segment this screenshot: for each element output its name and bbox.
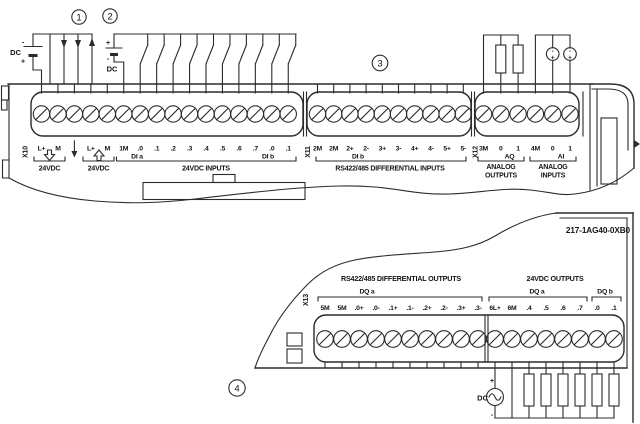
terminal-label: .2- xyxy=(440,305,447,312)
screw-slot xyxy=(387,333,398,344)
x13-label-area: X13 RS422/485 DIFFERENTIAL OUTPUTS 24VDC… xyxy=(303,274,621,306)
terminal-label: .7 xyxy=(577,305,583,312)
dc-label-left: DC xyxy=(10,48,21,57)
terminal-label: 1 xyxy=(568,146,572,153)
din-clip xyxy=(287,333,302,346)
bottom-connector xyxy=(143,183,305,200)
screw-slot xyxy=(283,108,294,119)
load-resistor-icon xyxy=(575,374,585,406)
screw-slot xyxy=(52,108,63,119)
terminal-label: L+ xyxy=(87,146,95,153)
plus-sign: + xyxy=(21,59,25,66)
screw-slot xyxy=(353,333,364,344)
screw-slot xyxy=(135,108,146,119)
terminal-label: 3M xyxy=(479,146,489,153)
screw-slot xyxy=(455,333,466,344)
screw-slot xyxy=(489,333,500,344)
screw-slot xyxy=(438,333,449,344)
part-number: 217-1AG40-0XB0 xyxy=(566,226,631,235)
analog-outputs-caption-2: OUTPUTS xyxy=(485,173,518,180)
callout-1: 1 xyxy=(72,10,86,24)
screw-slot xyxy=(217,108,228,119)
sensor-supply-circuit: DC - + xyxy=(10,34,95,84)
terminal-label: .4 xyxy=(526,305,532,312)
input-switches xyxy=(140,34,296,84)
screw-slot xyxy=(574,333,585,344)
analog-outputs-caption-1: ANALOG xyxy=(486,164,516,171)
screw-slot xyxy=(233,108,244,119)
callout-3: 3 xyxy=(372,55,388,71)
screw-slot xyxy=(409,108,420,119)
analog-inputs-caption-1: ANALOG xyxy=(538,164,568,171)
terminal-label: 4M xyxy=(531,146,541,153)
terminal-label: 2+ xyxy=(346,146,354,153)
current-down-arrow-icon xyxy=(61,34,67,84)
terminal-label: .2 xyxy=(170,146,176,153)
upper-housing xyxy=(2,84,640,203)
wiring-diagram-page: L+ML+M1M.0.1.2.3.4.5.6.7.0.1 2M2M2+2-3+3… xyxy=(0,0,640,424)
screw-slot xyxy=(361,108,372,119)
screw-slot xyxy=(85,108,96,119)
callout-2: 2 xyxy=(103,9,117,23)
screw-slot xyxy=(266,108,277,119)
screw-slot xyxy=(608,333,619,344)
power-supply-caption: 24VDC xyxy=(88,166,110,173)
terminal-label: .0 xyxy=(269,146,275,153)
screw-slot xyxy=(530,108,541,119)
terminal-label: 3- xyxy=(396,146,402,153)
terminal-label: 4+ xyxy=(411,146,419,153)
terminal-label: 2- xyxy=(363,146,369,153)
switch-blade-icon xyxy=(157,45,165,64)
dq-b-label: DQ b xyxy=(597,289,612,296)
current-down-arrow-icon xyxy=(75,34,81,84)
callout-4: 4 xyxy=(229,380,245,396)
aq-label: AQ xyxy=(505,154,515,161)
load-resistor-icon xyxy=(592,374,602,406)
terminal-label: .5 xyxy=(220,146,226,153)
screw-slot xyxy=(564,108,575,119)
minus-sign: - xyxy=(107,56,110,63)
terminal-label: 5M xyxy=(337,305,347,312)
terminal-label: 5+ xyxy=(443,146,451,153)
terminal-label: .1 xyxy=(286,146,292,153)
din-clip xyxy=(287,349,302,363)
terminal-label: .1 xyxy=(611,305,617,312)
connector-label-x10: X10 xyxy=(23,146,30,158)
sensor-supply-caption: 24VDC xyxy=(39,166,61,173)
terminal-label: 5- xyxy=(460,146,466,153)
callout-number: 3 xyxy=(377,58,382,69)
terminal-label: L+ xyxy=(38,146,46,153)
load-resistor-icon xyxy=(558,374,568,406)
callout-number: 4 xyxy=(234,383,239,394)
terminal-label: 1 xyxy=(516,146,520,153)
terminal-label: .1 xyxy=(154,146,160,153)
power-in-arrow-icon xyxy=(94,150,104,161)
screw-slot xyxy=(200,108,211,119)
terminal-label: .4 xyxy=(203,146,209,153)
dc-supply-icon xyxy=(487,368,504,418)
input-supply-circuit: + - DC xyxy=(106,34,296,84)
terminal-strip-x10: L+ML+M1M.0.1.2.3.4.5.6.7.0.1 xyxy=(31,84,303,153)
switch-blade-icon xyxy=(272,45,280,64)
dc-inputs-caption: 24VDC INPUTS xyxy=(182,166,230,173)
terminal-label: .0 xyxy=(138,146,144,153)
rs422-outputs-header: RS422/485 DIFFERENTIAL OUTPUTS xyxy=(341,274,461,283)
analog-input-sources: - + - + xyxy=(535,35,576,84)
output-load-circuit: DC + - xyxy=(477,368,619,419)
terminal-label: 5M xyxy=(320,305,330,312)
voltage-source-icon: - + xyxy=(564,35,577,84)
screw-slot xyxy=(69,108,80,119)
terminal-strip-x11: 2M2M2+2-3+3-4+4-5+5- xyxy=(307,84,471,153)
screw-slot xyxy=(312,108,323,119)
terminal-label: .0 xyxy=(594,305,600,312)
earth-arrow-icon xyxy=(71,141,77,158)
terminal-label: 6L+ xyxy=(489,305,501,312)
load-resistor-icon xyxy=(513,45,523,73)
terminal-label: 0 xyxy=(499,146,503,153)
connector-tab xyxy=(213,175,235,183)
switch-blade-icon xyxy=(288,45,296,64)
screw-slot xyxy=(393,108,404,119)
switch-blade-icon xyxy=(222,45,230,64)
terminal-label: .1- xyxy=(406,305,413,312)
terminal-label: .3- xyxy=(474,305,481,312)
terminal-label: .0- xyxy=(372,305,379,312)
screw-slot xyxy=(513,108,524,119)
terminal-label: .1+ xyxy=(388,305,397,312)
load-resistor-icon xyxy=(541,374,551,406)
switch-blade-icon xyxy=(140,45,148,64)
current-up-arrow-icon xyxy=(89,34,95,84)
screw-slot xyxy=(540,333,551,344)
terminal-label: 3+ xyxy=(379,146,387,153)
minus-sign: - xyxy=(569,49,571,55)
analog-inputs-caption-2: INPUTS xyxy=(541,173,566,180)
load-resistor-icon xyxy=(524,374,534,406)
output-loads xyxy=(524,368,619,418)
screw-slot xyxy=(118,108,129,119)
power-out-arrow-icon xyxy=(45,150,55,161)
screw-slot xyxy=(523,333,534,344)
load-resistor-icon xyxy=(496,45,506,73)
screw-slot xyxy=(328,108,339,119)
terminal-strip-x12: 3M014M01 xyxy=(475,84,579,153)
switch-blade-icon xyxy=(206,45,214,64)
voltage-source-icon: - + xyxy=(546,35,559,84)
screw-slot xyxy=(557,333,568,344)
dq-a-label: DQ a xyxy=(529,289,544,296)
screw-slot xyxy=(442,108,453,119)
screw-slot xyxy=(184,108,195,119)
di-b-label: DI b xyxy=(262,154,274,161)
di-a-label: DI a xyxy=(131,154,143,161)
switch-blade-icon xyxy=(255,45,263,64)
screw-slot xyxy=(151,108,162,119)
terminal-label: .3 xyxy=(187,146,193,153)
terminal-label: .3+ xyxy=(456,305,465,312)
terminal-strip-x13: 5M5M.0+.0-.1+.1-.2+.2-.3+.3-6L+6M.4.5.6.… xyxy=(314,305,624,368)
connector-label-x12: X12 xyxy=(473,146,480,158)
plc-wiring-diagram: L+ML+M1M.0.1.2.3.4.5.6.7.0.1 2M2M2+2-3+3… xyxy=(0,0,640,424)
terminal-label: M xyxy=(55,146,61,153)
screw-slot xyxy=(458,108,469,119)
screw-slot xyxy=(425,108,436,119)
terminal-label: 2M xyxy=(313,146,323,153)
screw-slot xyxy=(168,108,179,119)
screw-slot xyxy=(404,333,415,344)
dc-label-output: DC xyxy=(477,394,488,403)
terminal-label: .6 xyxy=(560,305,566,312)
analog-output-loads xyxy=(484,35,524,84)
screw-slot xyxy=(250,108,261,119)
plus-sign: + xyxy=(490,378,494,385)
clip-pointer-icon xyxy=(634,140,640,148)
x11-di-b-label: DI b xyxy=(352,154,364,161)
terminal-label: 0 xyxy=(551,146,555,153)
dc-outputs-header: 24VDC OUTPUTS xyxy=(527,274,584,283)
dq-a-label: DQ a xyxy=(359,289,374,296)
lower-housing: 217-1AG40-0XB0 xyxy=(255,213,633,422)
dc-battery-icon xyxy=(24,34,42,84)
ai-label: AI xyxy=(558,154,565,161)
callout-number: 1 xyxy=(76,12,81,23)
terminal-label: M xyxy=(105,146,111,153)
terminal-label: 6M xyxy=(507,305,517,312)
terminal-label: 1M xyxy=(119,146,129,153)
terminal-label: .5 xyxy=(543,305,549,312)
switch-blade-icon xyxy=(239,45,247,64)
screw-slot xyxy=(495,108,506,119)
lower-torn-edge xyxy=(255,213,556,368)
minus-sign: - xyxy=(552,49,554,55)
plus-sign: + xyxy=(106,40,110,47)
rs422-inputs-caption: RS422/485 DIFFERENTIAL INPUTS xyxy=(335,166,445,173)
screw-slot xyxy=(344,108,355,119)
terminal-label: 4- xyxy=(428,146,434,153)
screw-slot xyxy=(319,333,330,344)
terminal-label: .6 xyxy=(236,146,242,153)
screw-slot xyxy=(478,108,489,119)
screw-slot xyxy=(377,108,388,119)
switch-blade-icon xyxy=(173,45,181,64)
screw-slot xyxy=(547,108,558,119)
terminal-label: .0+ xyxy=(354,305,363,312)
screw-slot xyxy=(472,333,483,344)
screw-slot xyxy=(102,108,113,119)
callout-number: 2 xyxy=(107,11,112,22)
screw-slot xyxy=(336,333,347,344)
minus-sign: - xyxy=(491,412,494,419)
terminal-label: .2+ xyxy=(422,305,431,312)
connector-label-x11: X11 xyxy=(305,146,312,158)
load-resistor-icon xyxy=(609,374,619,406)
screw-slot xyxy=(591,333,602,344)
minus-sign: - xyxy=(22,40,25,47)
switch-blade-icon xyxy=(190,45,198,64)
connector-label-x13: X13 xyxy=(303,294,310,306)
terminal-label: 2M xyxy=(329,146,339,153)
screw-slot xyxy=(36,108,47,119)
dc-label-input: DC xyxy=(107,65,118,74)
screw-slot xyxy=(506,333,517,344)
din-clip xyxy=(601,118,617,184)
terminal-label: .7 xyxy=(253,146,259,153)
screw-slot xyxy=(421,333,432,344)
screw-slot xyxy=(370,333,381,344)
